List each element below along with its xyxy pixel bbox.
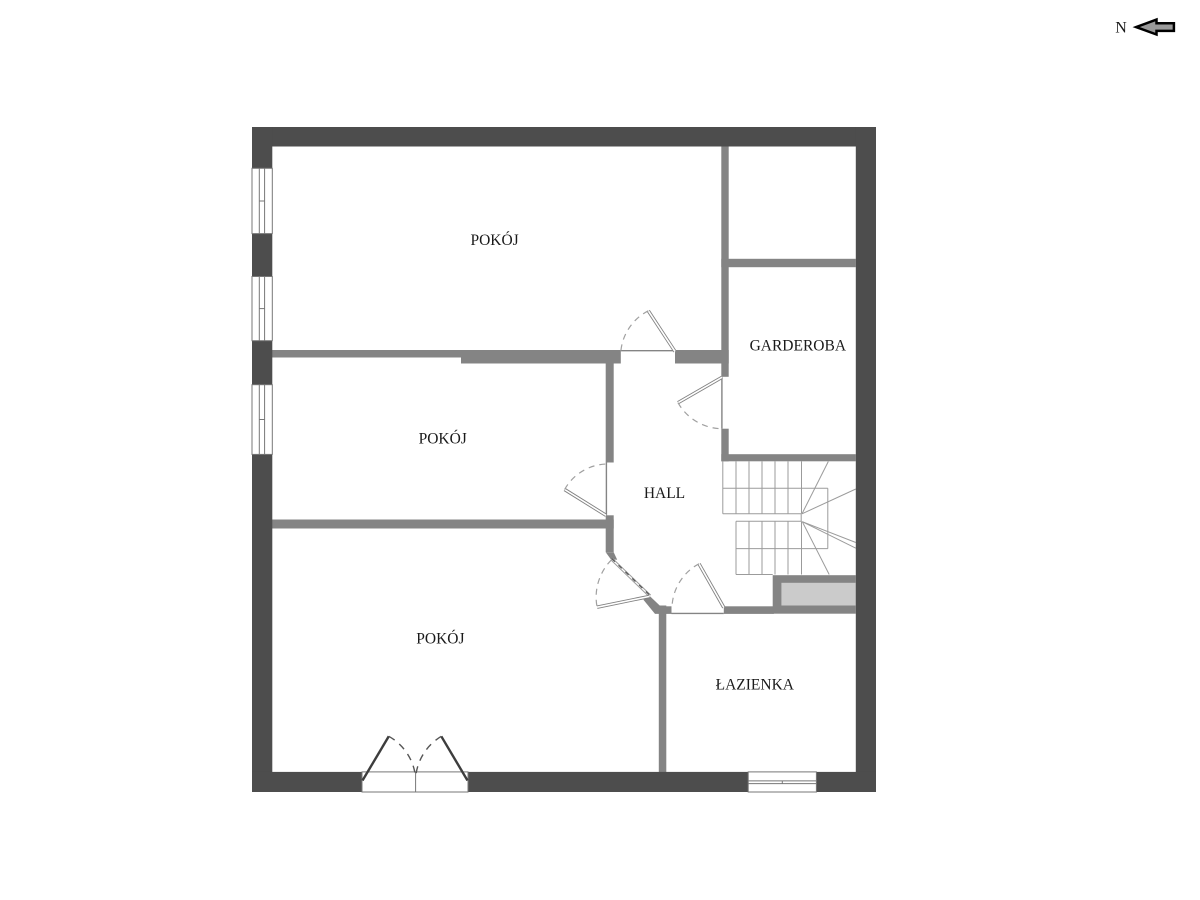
svg-text:N: N (1115, 20, 1127, 37)
svg-text:POKÓJ: POKÓJ (416, 631, 464, 648)
svg-text:HALL: HALL (644, 485, 685, 502)
svg-text:GARDEROBA: GARDEROBA (750, 338, 847, 355)
svg-text:ŁAZIENKA: ŁAZIENKA (716, 677, 795, 694)
svg-text:POKÓJ: POKÓJ (419, 431, 467, 448)
svg-text:POKÓJ: POKÓJ (470, 232, 518, 249)
